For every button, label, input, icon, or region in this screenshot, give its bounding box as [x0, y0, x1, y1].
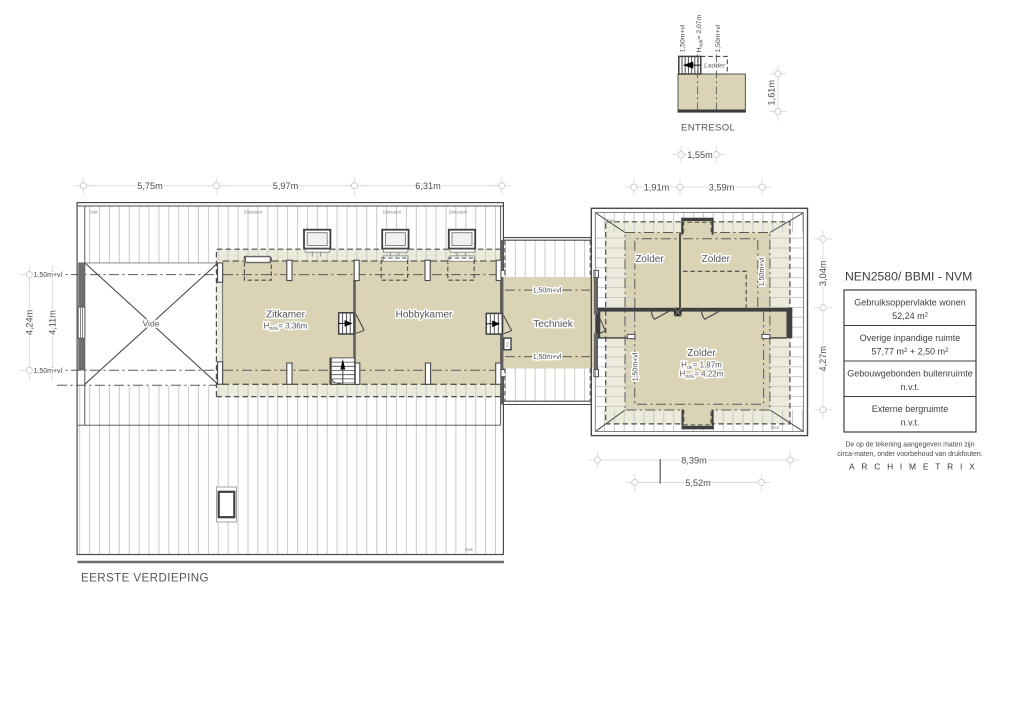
svg-text:Dak: Dak	[607, 218, 616, 223]
svg-text:4,24m: 4,24m	[24, 309, 34, 335]
svg-text:Gebruiksoppervlakte wonen: Gebruiksoppervlakte wonen	[854, 298, 966, 308]
svg-text:Dakraam: Dakraam	[449, 210, 468, 215]
svg-text:57,77 m2 + 2,50 m2: 57,77 m2 + 2,50 m2	[872, 347, 950, 357]
svg-text:5,97m: 5,97m	[273, 181, 299, 191]
svg-text:1,61m: 1,61m	[767, 80, 777, 106]
svg-text:NEN2580/ BBMI - NVM: NEN2580/ BBMI - NVM	[845, 270, 972, 284]
svg-text:Zolder: Zolder	[635, 254, 664, 265]
svg-text:1,50m+vl: 1,50m+vl	[533, 288, 562, 295]
svg-text:Overige inpandige ruimte: Overige inpandige ruimte	[860, 333, 961, 343]
svg-text:Techniek: Techniek	[533, 319, 573, 330]
svg-text:8,39m: 8,39m	[681, 456, 707, 466]
svg-text:3,59m: 3,59m	[709, 182, 735, 192]
svg-text:n.v.t.: n.v.t.	[901, 418, 920, 428]
svg-text:Dak: Dak	[771, 425, 780, 430]
svg-text:Gebouwgebonden buitenruimte: Gebouwgebonden buitenruimte	[847, 369, 973, 379]
svg-text:2: 2	[506, 343, 509, 349]
svg-text:5,52m: 5,52m	[685, 478, 711, 488]
svg-text:5,75m: 5,75m	[137, 181, 163, 191]
svg-text:Dakraam: Dakraam	[244, 210, 263, 215]
svg-text:circa-maten, onder voorbehoud: circa-maten, onder voorbehoud van drukfo…	[837, 451, 982, 458]
svg-text:Externe bergruimte: Externe bergruimte	[872, 404, 949, 414]
svg-text:Ladder: Ladder	[704, 63, 726, 70]
svg-text:1,50m+vl: 1,50m+vl	[34, 368, 63, 375]
svg-text:3,04m: 3,04m	[818, 260, 828, 286]
svg-text:1,55m: 1,55m	[687, 150, 713, 160]
svg-text:Hobbykamer: Hobbykamer	[396, 310, 453, 321]
svg-text:1,50m+vl: 1,50m+vl	[759, 257, 766, 286]
svg-text:Dakraam: Dakraam	[383, 210, 402, 215]
svg-text:Dak: Dak	[465, 547, 474, 552]
svg-text:1,50m+vl: 1,50m+vl	[633, 352, 640, 381]
svg-text:52,24 m2: 52,24 m2	[892, 311, 929, 321]
svg-text:Dak: Dak	[90, 210, 99, 215]
svg-text:1,91m: 1,91m	[644, 182, 670, 192]
svg-text:n.v.t.: n.v.t.	[901, 382, 920, 392]
svg-text:Zolder: Zolder	[702, 254, 731, 265]
svg-text:1,50m+vl: 1,50m+vl	[533, 354, 562, 361]
svg-text:1,50m+vl: 1,50m+vl	[34, 272, 63, 279]
svg-text:ARCHIMETRIX: ARCHIMETRIX	[849, 462, 982, 472]
svg-text:De op de tekening aangegeven m: De op de tekening aangegeven maten zijn	[845, 442, 974, 449]
svg-text:Zitkamer: Zitkamer	[266, 310, 306, 321]
svg-text:1,50m+vl: 1,50m+vl	[715, 24, 722, 52]
svg-text:4,27m: 4,27m	[818, 346, 828, 372]
svg-text:EERSTE VERDIEPING: EERSTE VERDIEPING	[81, 572, 209, 585]
svg-text:Zolder: Zolder	[687, 348, 716, 359]
svg-text:4,11m: 4,11m	[48, 310, 58, 335]
svg-text:1,50m+vl: 1,50m+vl	[680, 24, 687, 52]
svg-text:ENTRESOL: ENTRESOL	[681, 123, 735, 134]
svg-text:6,31m: 6,31m	[415, 181, 441, 191]
svg-text:Vide: Vide	[142, 318, 159, 328]
